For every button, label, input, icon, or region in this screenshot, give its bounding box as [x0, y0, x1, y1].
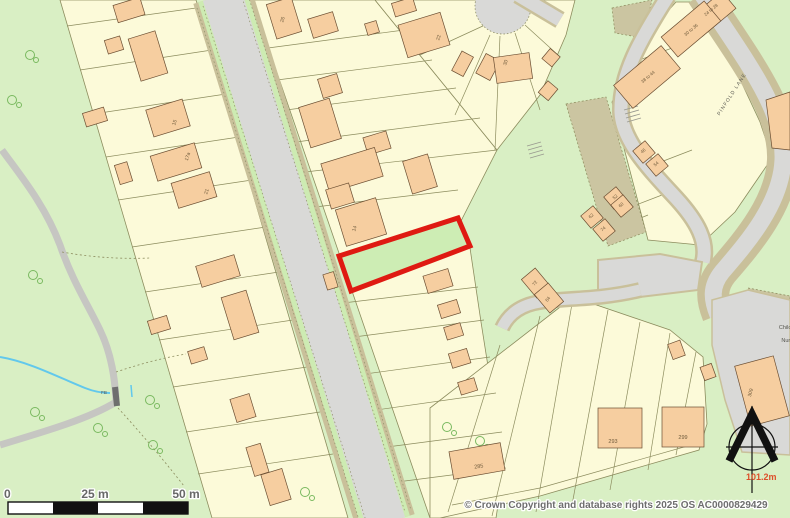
map-label-fb: FB: [101, 390, 107, 395]
map-label-h293: 293: [608, 439, 617, 445]
map-label-copyright: © Crown Copyright and database rights 20…: [464, 500, 768, 511]
map-label-spot: 101.2m: [746, 472, 777, 482]
map-label-h299: 299: [678, 435, 687, 441]
stream-tick: [131, 385, 132, 397]
scale-bar: [8, 502, 188, 514]
map-label-scale50: 50 m: [172, 487, 199, 501]
map-label-scale0: 0: [4, 487, 11, 501]
map-label-h285: 285: [474, 463, 484, 470]
map-label-nursery1: Children's: [779, 325, 790, 331]
map-canvas: 1517a212622301424 to 2830 to 3638 to 444…: [0, 0, 790, 518]
map-svg: 1517a212622301424 to 2830 to 3638 to 444…: [0, 0, 790, 518]
footbridge: [115, 387, 117, 406]
map-label-nursery2: Nursery: [781, 338, 790, 344]
map-label-scale25: 25 m: [81, 487, 108, 501]
